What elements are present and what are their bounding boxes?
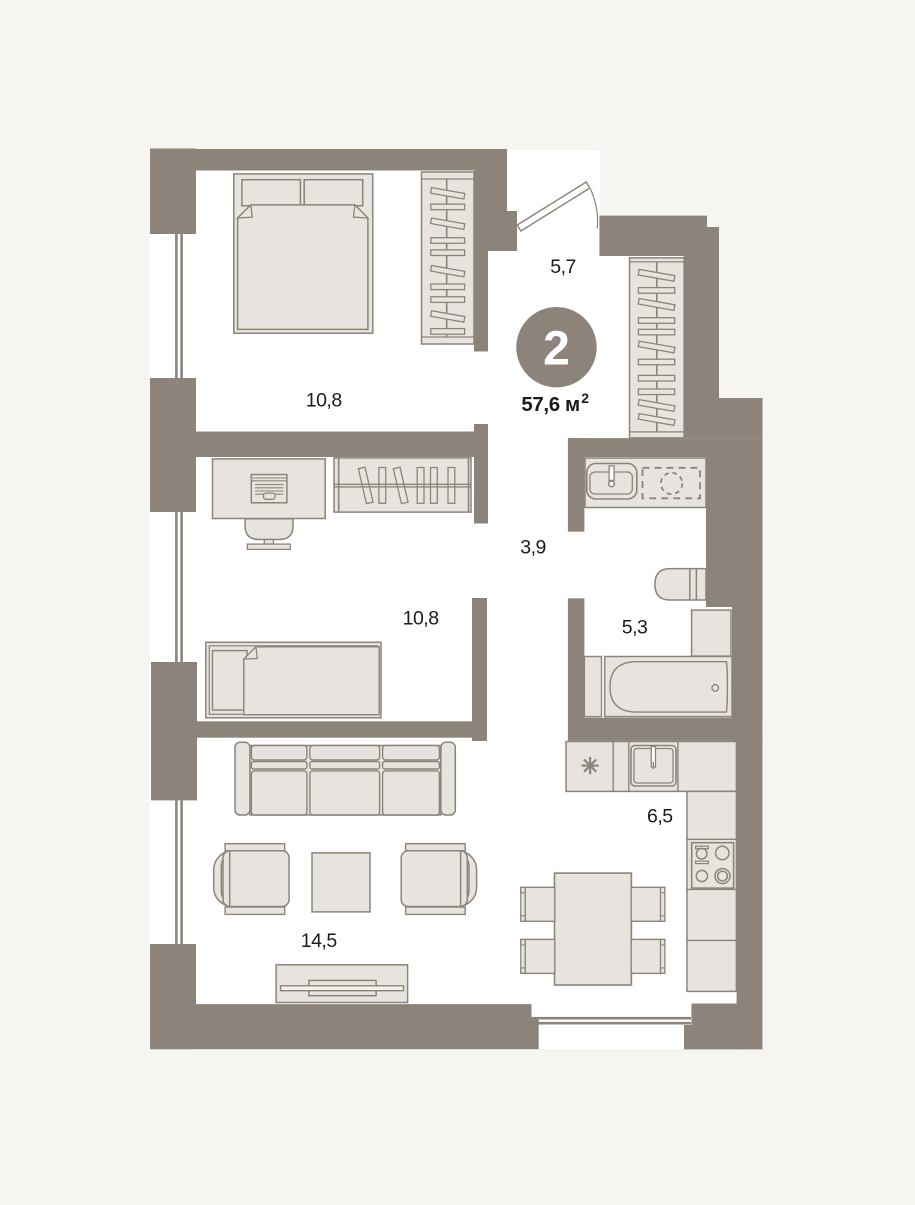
svg-text:10,8: 10,8 (306, 389, 342, 411)
svg-text:3,9: 3,9 (520, 536, 546, 558)
svg-text:14,5: 14,5 (301, 930, 338, 952)
svg-text:5,7: 5,7 (550, 256, 576, 278)
svg-text:6,5: 6,5 (647, 806, 673, 828)
svg-text:5,3: 5,3 (622, 617, 648, 639)
svg-text:57,6 м2: 57,6 м2 (521, 390, 589, 416)
svg-text:10,8: 10,8 (403, 607, 439, 629)
svg-text:2: 2 (543, 323, 570, 376)
